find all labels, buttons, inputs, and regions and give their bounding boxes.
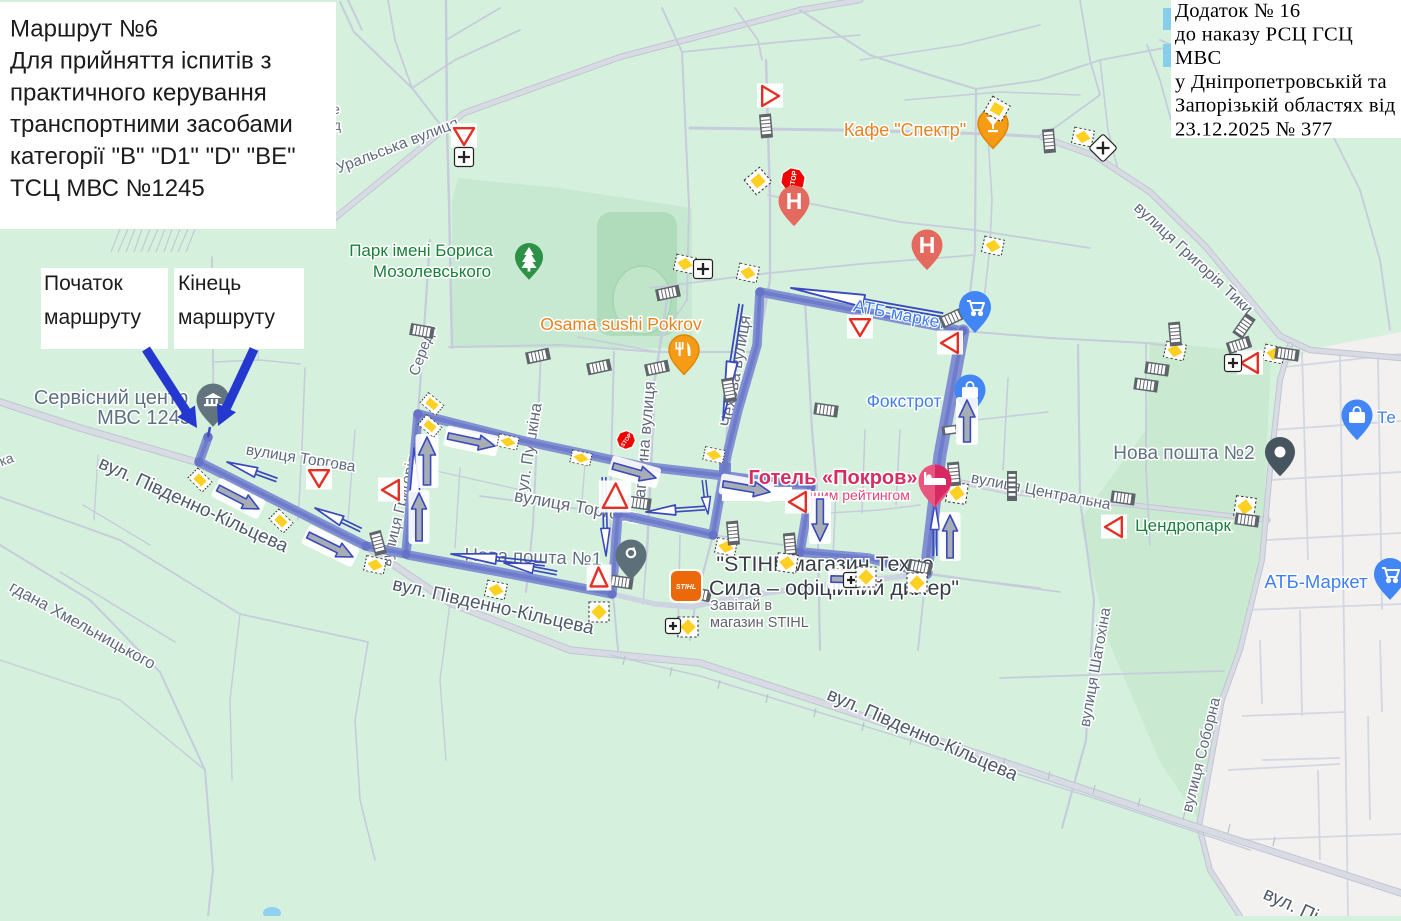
svg-text:Фокстрот: Фокстрот (867, 391, 942, 411)
svg-text:Сервісний центр: Сервісний центр (34, 387, 188, 409)
svg-text:"STIHL магазин Техно: "STIHL магазин Техно (716, 552, 933, 576)
svg-text:ТСЦ МВС №1245: ТСЦ МВС №1245 (10, 175, 205, 202)
svg-text:МВС: МВС (1175, 47, 1221, 69)
svg-text:АТБ-Маркет: АТБ-Маркет (1264, 571, 1368, 592)
svg-text:магазин STIHL: магазин STIHL (710, 615, 809, 631)
svg-text:Osama sushi Pokrov: Osama sushi Pokrov (540, 314, 702, 334)
svg-text:Мозолевського: Мозолевського (373, 262, 491, 281)
svg-text:Кінець: Кінець (178, 272, 241, 295)
svg-text:23.12.2025 № 377: 23.12.2025 № 377 (1175, 118, 1333, 140)
svg-text:Для прийняття іспитів з: Для прийняття іспитів з (10, 47, 271, 74)
svg-text:МВС 1245: МВС 1245 (97, 407, 191, 429)
svg-text:Додаток № 16: Додаток № 16 (1175, 0, 1300, 22)
svg-text:Маршрут №6: Маршрут №6 (10, 16, 158, 43)
svg-text:Завітай в: Завітай в (710, 598, 772, 614)
svg-text:маршруту: маршруту (44, 306, 141, 329)
svg-text:маршруту: маршруту (178, 306, 275, 329)
svg-text:Нова пошта №2: Нова пошта №2 (1113, 443, 1254, 464)
svg-text:транспортними засобами: транспортними засобами (10, 111, 293, 138)
svg-text:Запорізькій областях від: Запорізькій областях від (1175, 95, 1396, 117)
svg-text:Початок: Початок (44, 272, 124, 295)
svg-text:Готель «Покров»: Готель «Покров» (748, 467, 917, 489)
svg-text:категорії "B" "D1" "D" "BE": категорії "B" "D1" "D" "BE" (10, 143, 296, 170)
svg-text:Цендропарк: Цендропарк (1135, 516, 1231, 535)
svg-text:H: H (786, 188, 803, 214)
svg-text:H: H (919, 232, 936, 258)
svg-text:практичного керування: практичного керування (10, 79, 267, 106)
svg-text:Те: Те (1377, 408, 1396, 427)
svg-text:у Дніпропетровській та: у Дніпропетровській та (1175, 71, 1387, 93)
svg-text:STIHL: STIHL (676, 584, 696, 591)
svg-text:до наказу РСЦ ГСЦ: до наказу РСЦ ГСЦ (1175, 24, 1353, 46)
svg-text:Кафе "Спектр": Кафе "Спектр" (844, 120, 966, 140)
svg-text:Парк імені Бориса: Парк імені Бориса (349, 241, 493, 260)
